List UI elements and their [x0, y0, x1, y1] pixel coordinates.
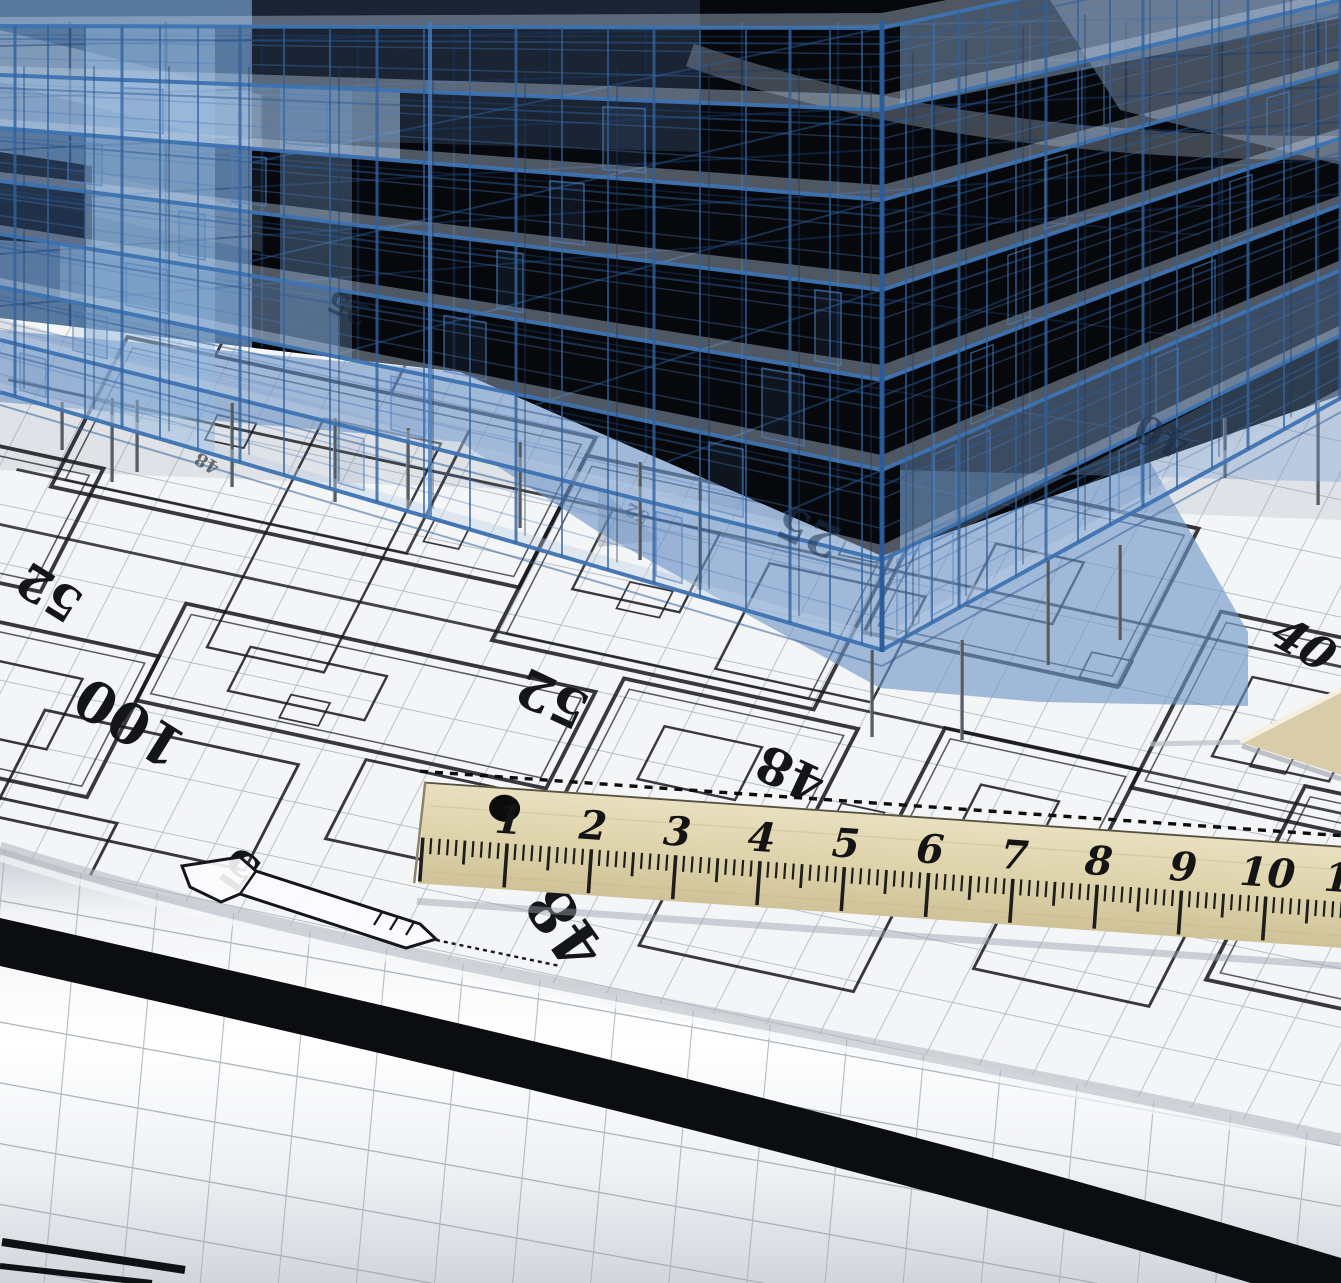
ruler-tick — [1147, 888, 1148, 904]
ruler-tick — [1046, 881, 1047, 897]
ruler-tick — [1172, 890, 1173, 906]
ruler-tick — [818, 865, 819, 881]
ruler-tick — [995, 878, 996, 894]
ruler-tick — [447, 839, 448, 855]
ruler-tick — [1071, 883, 1072, 899]
ruler-tick — [498, 843, 499, 859]
ruler-tick — [919, 872, 920, 888]
ruler-number-1: 1 — [493, 796, 524, 845]
ruler-tick — [632, 852, 634, 876]
ruler-tick — [557, 847, 558, 863]
ruler-tick — [1113, 886, 1114, 902]
ruler-tick — [894, 871, 895, 887]
ruler-tick — [826, 866, 827, 882]
window-frame — [656, 512, 682, 584]
window-frame — [285, 94, 327, 146]
ruler-tick — [793, 864, 794, 880]
window-frame — [391, 376, 425, 438]
ruler-tick — [531, 845, 532, 861]
ruler-tick — [725, 859, 726, 875]
ruler-tick — [784, 863, 785, 879]
ruler-tick — [1214, 893, 1215, 909]
ruler-tick — [776, 862, 777, 878]
ruler-tick — [734, 859, 735, 875]
ruler-tick — [885, 870, 887, 894]
ruler-tick — [860, 868, 861, 884]
ruler-tick — [1332, 901, 1333, 917]
ruler-tick — [565, 848, 566, 864]
window-frame — [232, 155, 266, 206]
ruler-number-4: 4 — [746, 813, 777, 862]
set-square-shadow — [1150, 742, 1246, 744]
ruler-tick — [1306, 899, 1308, 923]
blueprint-scene: 48 52 52 100 5 52 48 40 25 25 40 48 — [0, 0, 1341, 1283]
ruler-tick — [987, 877, 988, 893]
ruler-tick — [439, 839, 440, 855]
ruler-tick — [624, 852, 625, 868]
ruler-tick — [489, 842, 490, 858]
ruler-tick — [1029, 880, 1030, 896]
ruler-tick — [969, 876, 971, 900]
ruler-tick — [1037, 881, 1038, 897]
ruler-tick — [548, 846, 550, 870]
ruler-tick — [1298, 899, 1299, 915]
ruler-tick — [1239, 895, 1240, 911]
ruler-tick — [767, 862, 768, 878]
ruler-tick — [1121, 887, 1122, 903]
ruler-tick — [1189, 891, 1190, 907]
ruler-number-3: 3 — [662, 807, 693, 856]
ruler-tick — [616, 851, 617, 867]
ruler-tick — [582, 849, 583, 865]
ruler-tick — [455, 840, 456, 856]
ruler-number-7: 7 — [999, 831, 1030, 880]
ruler-tick — [700, 857, 701, 873]
ruler-tick — [573, 848, 574, 864]
ruler-tick — [1130, 887, 1131, 903]
ruler-tick — [835, 866, 836, 882]
ruler-tick — [472, 841, 473, 857]
ruler-tick — [708, 858, 709, 874]
facade-beam — [0, 26, 882, 28]
ruler-number-10: 10 — [1238, 848, 1297, 899]
ruler-tick — [691, 856, 692, 872]
ruler-number-5: 5 — [830, 819, 861, 868]
ruler-tick — [666, 855, 667, 871]
window-frame — [815, 290, 841, 365]
ruler-tick — [514, 844, 515, 860]
ruler-tick — [540, 846, 541, 862]
ruler-tick — [1155, 889, 1156, 905]
ruler-tick — [1003, 878, 1004, 894]
ruler-tick — [658, 854, 659, 870]
ruler-tick — [481, 842, 482, 858]
ruler-tick — [742, 860, 743, 876]
ruler-tick — [1164, 889, 1165, 905]
window-frame — [603, 107, 645, 173]
ruler-tick — [463, 841, 465, 865]
ruler-tick — [877, 869, 878, 885]
ruler-tick — [599, 850, 600, 866]
ruler-tick — [869, 869, 870, 885]
window-frame — [762, 368, 804, 446]
ruler-tick — [1231, 894, 1232, 910]
window-frame — [338, 432, 364, 490]
ruler-tick — [716, 858, 718, 882]
ruler-tick — [607, 851, 608, 867]
ruler-tick — [430, 838, 431, 854]
window-frame — [709, 442, 743, 517]
ruler-tick — [852, 868, 853, 884]
ruler-number-2: 2 — [577, 801, 609, 850]
ruler-tick — [809, 865, 810, 881]
window-frame — [497, 250, 523, 312]
ruler-tick — [1222, 894, 1224, 918]
window-frame — [550, 181, 584, 245]
ruler-tick — [683, 856, 684, 872]
ruler-tick — [1282, 898, 1283, 914]
ruler-tick — [1053, 882, 1055, 906]
ruler-tick — [1088, 884, 1089, 900]
ruler-number-6: 6 — [915, 825, 946, 874]
ruler-tick — [961, 875, 962, 891]
ruler-tick — [649, 854, 650, 870]
ruler-tick — [1197, 892, 1198, 908]
ruler-tick — [1290, 898, 1291, 914]
ruler-tick — [750, 861, 751, 877]
ruler-tick — [1138, 888, 1140, 912]
window-frame — [121, 88, 163, 134]
ruler-tick — [1062, 882, 1063, 898]
ruler-tick — [911, 872, 912, 888]
ruler-tick — [1248, 895, 1249, 911]
window-frame — [444, 315, 486, 379]
ruler-tick — [1105, 885, 1106, 901]
ruler-tick — [1020, 879, 1021, 895]
window-frame — [179, 211, 205, 260]
scene-canvas: 48 52 52 100 5 52 48 40 25 25 40 48 — [0, 0, 1341, 1283]
ruler-tick — [1256, 896, 1257, 912]
ruler-tick — [1315, 900, 1316, 916]
ruler-tick — [1273, 897, 1274, 913]
ruler-tick — [936, 874, 937, 890]
ruler-tick — [978, 876, 979, 892]
ruler-number-8: 8 — [1082, 837, 1114, 886]
ruler-tick — [641, 853, 642, 869]
ruler-tick — [801, 864, 803, 888]
ruler-tick — [944, 874, 945, 890]
ruler-tick — [1206, 892, 1207, 908]
ruler-number-11: 11 — [1322, 854, 1341, 905]
ruler-tick — [902, 871, 903, 887]
ruler-tick — [953, 875, 954, 891]
ruler-tick — [1079, 884, 1080, 900]
ruler-tick — [523, 845, 524, 861]
ruler-tick — [1324, 901, 1325, 917]
window-frame — [68, 142, 102, 186]
ruler-number-9: 9 — [1168, 843, 1199, 892]
